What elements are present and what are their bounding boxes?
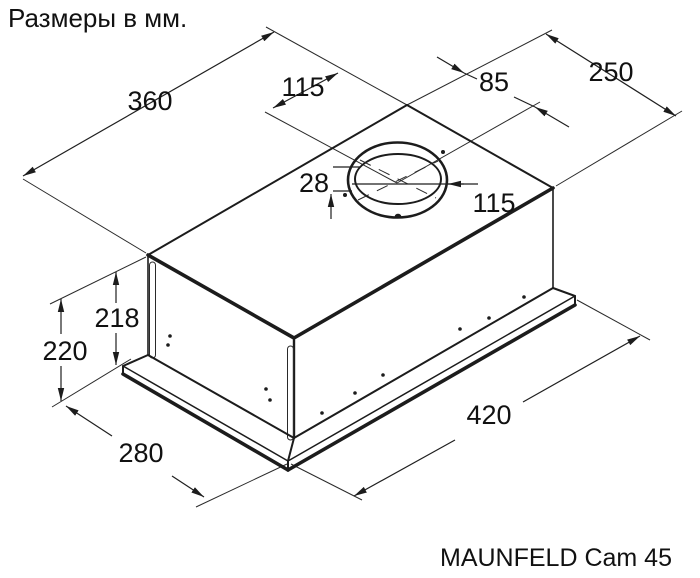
dim-label-280: 280 <box>118 438 163 468</box>
collar-screw-dot <box>343 193 347 197</box>
dim-label-115-top: 115 <box>281 72 324 102</box>
drawing-page: 360 115 85 250 28 <box>0 0 700 578</box>
dim-label-28: 28 <box>299 168 329 198</box>
model-caption: MAUNFELD Cam 45 <box>440 544 672 572</box>
dim-label-85: 85 <box>479 67 509 97</box>
dim-label-360: 360 <box>127 86 172 116</box>
dim-label-250: 250 <box>588 57 633 87</box>
collar-screw-dot <box>441 150 445 154</box>
hood-dimension-diagram: 360 115 85 250 28 <box>0 0 700 578</box>
dim-label-420: 420 <box>466 400 511 430</box>
dim-label-220: 220 <box>42 336 87 366</box>
page-title: Размеры в мм. <box>8 3 187 33</box>
dim-label-218: 218 <box>94 303 139 333</box>
collar-screw-dot <box>395 214 401 218</box>
dim-label-115-diam: 115 <box>472 188 515 218</box>
